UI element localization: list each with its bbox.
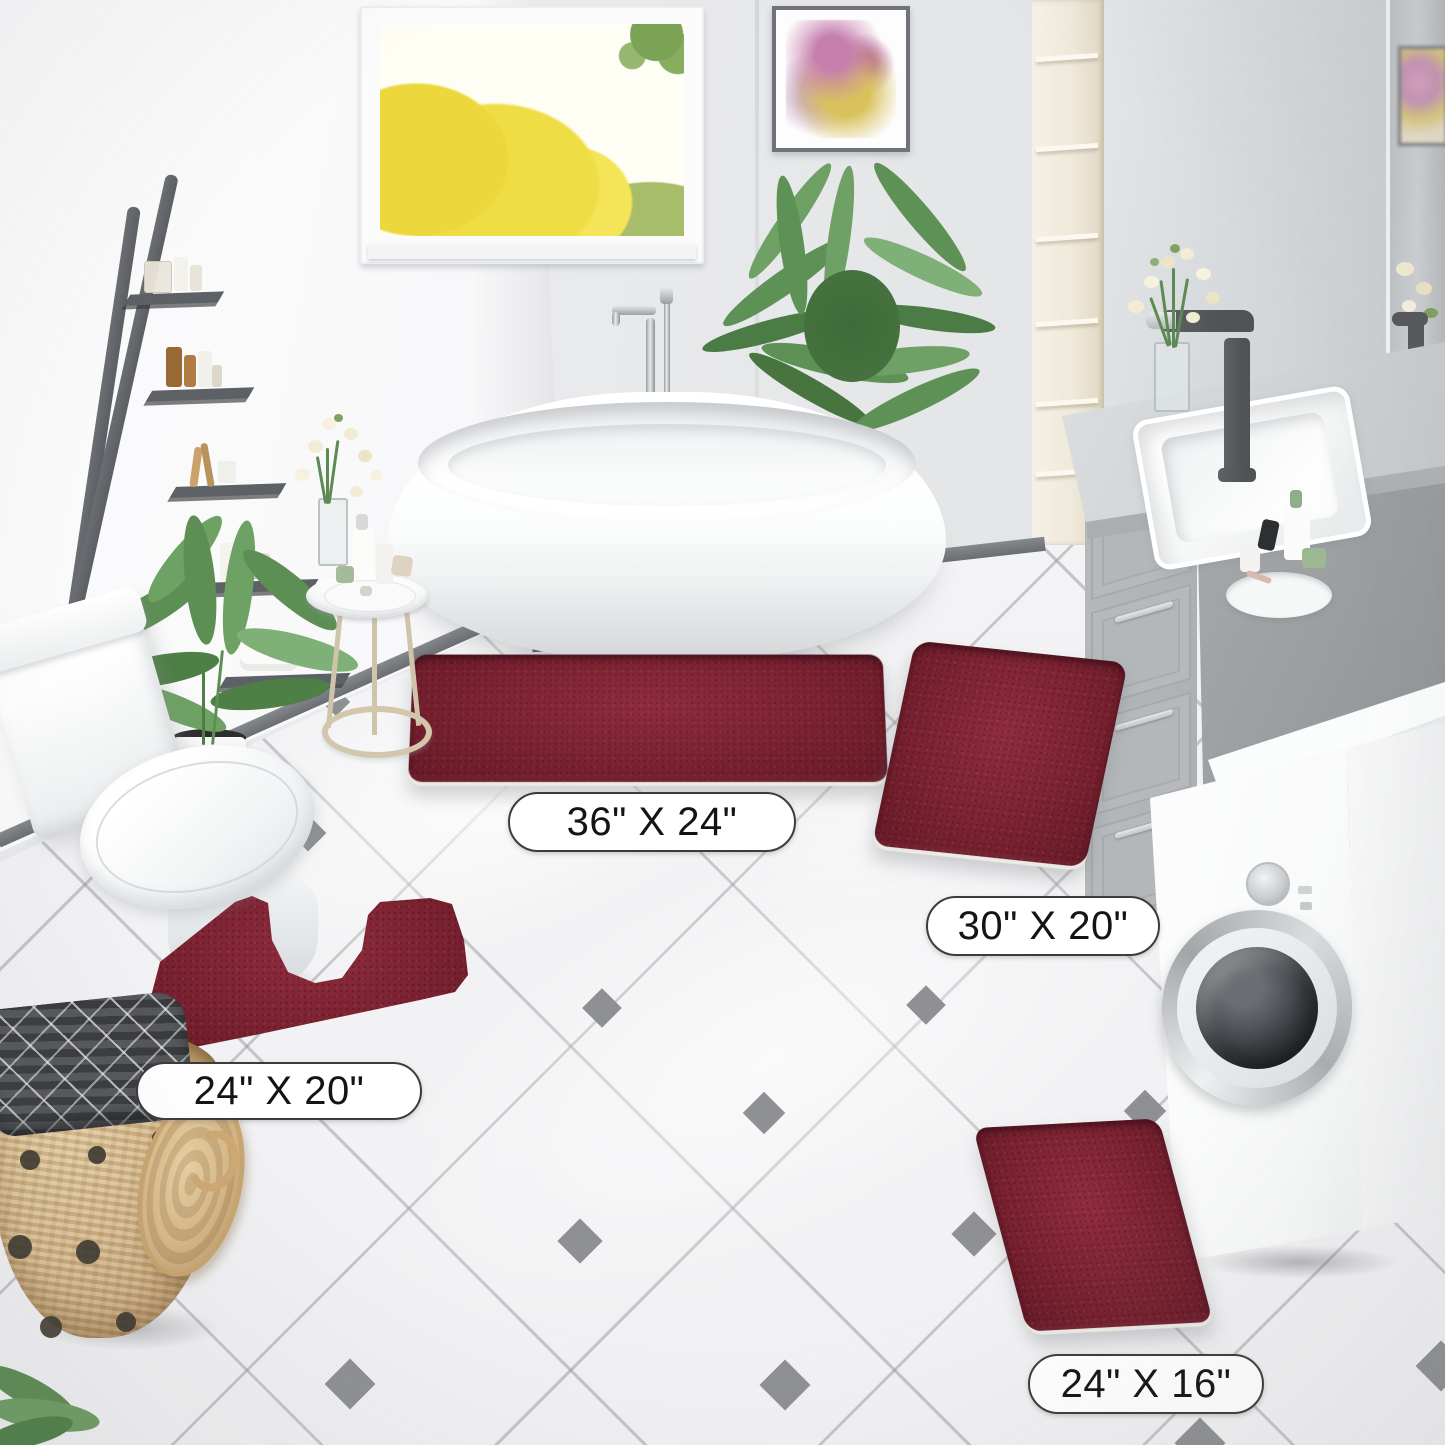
flower bbox=[308, 440, 323, 453]
window-autumn-view bbox=[380, 24, 684, 236]
flower bbox=[1186, 312, 1200, 323]
shelf-amber-bottle bbox=[166, 347, 182, 387]
flower bbox=[1206, 292, 1220, 304]
washer-button bbox=[1300, 902, 1312, 910]
washer-dial bbox=[1246, 862, 1290, 906]
flower bbox=[370, 470, 383, 481]
sink-faucet-base bbox=[1218, 468, 1256, 482]
washer-door-glass bbox=[1196, 947, 1318, 1069]
window-sill bbox=[368, 244, 696, 259]
size-label-text: 24" X 16" bbox=[1061, 1362, 1232, 1407]
basket-dot bbox=[8, 1235, 32, 1259]
artwork-abstract-flowers bbox=[786, 20, 896, 138]
mirror-reflection-flowers bbox=[1416, 282, 1432, 295]
basket-dot bbox=[116, 1312, 136, 1332]
flower-bud bbox=[1150, 258, 1159, 266]
toiletries-tray bbox=[1226, 572, 1332, 618]
basket-dot bbox=[20, 1150, 40, 1170]
pump-top bbox=[356, 514, 368, 530]
flower bbox=[1160, 256, 1175, 268]
bathroom-scene: 36" X 24" 30" X 20" 24" X 20" 24" X 16" bbox=[0, 0, 1445, 1445]
shelf-amber-bottle bbox=[184, 355, 196, 387]
table-tray bbox=[324, 580, 416, 612]
flower-stem bbox=[1172, 268, 1175, 348]
sink-faucet bbox=[1224, 338, 1250, 478]
washer-button bbox=[1298, 886, 1312, 894]
small-jar bbox=[360, 586, 372, 596]
flower-vase bbox=[1154, 342, 1190, 412]
size-label-pill: 24" X 16" bbox=[1028, 1354, 1264, 1414]
pump-bottle bbox=[352, 528, 374, 580]
flower bbox=[1180, 248, 1194, 260]
size-label-pill: 36" X 24" bbox=[508, 792, 796, 852]
framed-artwork bbox=[772, 6, 910, 152]
green-jar bbox=[1302, 548, 1326, 568]
tub-wand-handle bbox=[660, 288, 673, 304]
basket-dot bbox=[76, 1240, 100, 1264]
basket-dot bbox=[88, 1146, 106, 1164]
flower bbox=[295, 468, 310, 481]
window bbox=[360, 6, 704, 264]
white-jar bbox=[1240, 548, 1260, 572]
green-jar bbox=[336, 566, 354, 583]
mirror-reflection-artwork bbox=[1398, 46, 1445, 146]
shelf-bottle bbox=[174, 257, 188, 291]
tub-faucet-spout-tip bbox=[612, 312, 620, 326]
flower-bud bbox=[334, 414, 343, 422]
size-label-text: 24" X 20" bbox=[194, 1069, 365, 1114]
basket-dot bbox=[40, 1316, 62, 1338]
rug-36x24 bbox=[408, 655, 888, 782]
flower-vase bbox=[318, 498, 348, 566]
shelf-jar bbox=[218, 461, 236, 483]
flower bbox=[1144, 276, 1159, 288]
lotion-pump bbox=[1290, 490, 1302, 508]
flower bbox=[344, 428, 358, 440]
table-ring-base bbox=[322, 706, 432, 758]
bottle bbox=[376, 544, 393, 584]
rug-30x20 bbox=[872, 641, 1128, 868]
flower bbox=[358, 450, 372, 462]
flower bbox=[1128, 300, 1144, 313]
freestanding-bathtub bbox=[388, 392, 946, 660]
size-label-text: 36" X 24" bbox=[567, 800, 738, 845]
size-label-pill: 24" X 20" bbox=[136, 1062, 422, 1120]
flower-bud bbox=[1170, 244, 1180, 253]
cosmetic-box bbox=[391, 555, 414, 578]
flower bbox=[1196, 268, 1211, 280]
shelf-bottle bbox=[198, 351, 212, 387]
size-label-text: 30" X 20" bbox=[958, 904, 1129, 949]
drawer-handle bbox=[1115, 601, 1173, 624]
size-label-pill: 30" X 20" bbox=[926, 896, 1160, 956]
tub-interior bbox=[448, 424, 886, 506]
shelf-bottle bbox=[212, 365, 222, 387]
mirror-reflection-flowers bbox=[1396, 262, 1414, 276]
mirror-reflection-faucet-arm bbox=[1392, 312, 1428, 326]
flower bbox=[350, 486, 363, 497]
shelf-bottle bbox=[190, 265, 202, 291]
shelf-jar bbox=[144, 261, 172, 293]
mirror-reflection-flowers bbox=[1402, 300, 1416, 312]
